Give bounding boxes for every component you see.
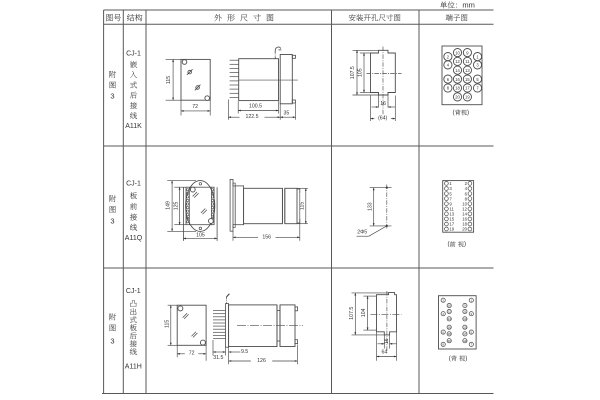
svg-text:): )	[465, 355, 467, 362]
svg-text:9.5: 9.5	[241, 349, 248, 355]
svg-text:): )	[467, 109, 469, 116]
svg-text:19: 19	[465, 95, 470, 100]
svg-text:19: 19	[463, 339, 467, 343]
svg-text:CJ-1: CJ-1	[126, 181, 141, 188]
svg-text:115: 115	[165, 320, 171, 328]
svg-text:100.5: 100.5	[249, 104, 262, 110]
svg-text:A11H: A11H	[125, 363, 142, 370]
svg-text:107.5: 107.5	[350, 66, 356, 79]
svg-text:72: 72	[189, 351, 195, 357]
svg-text:14: 14	[448, 317, 452, 321]
svg-text:13: 13	[463, 317, 467, 321]
svg-text:20: 20	[455, 95, 460, 100]
svg-text:20: 20	[448, 339, 452, 343]
svg-text:10: 10	[448, 304, 452, 308]
svg-text:12: 12	[455, 59, 460, 64]
svg-text:156: 156	[262, 234, 271, 240]
svg-text:16: 16	[448, 325, 452, 329]
svg-text:12: 12	[448, 310, 452, 314]
svg-text:18: 18	[448, 332, 452, 336]
svg-text:10: 10	[455, 50, 460, 55]
svg-text:3: 3	[110, 337, 114, 346]
svg-text:19: 19	[449, 227, 454, 232]
svg-text:31.5: 31.5	[213, 355, 223, 361]
svg-text:115: 115	[166, 76, 172, 84]
svg-text:72: 72	[192, 104, 198, 110]
svg-text:15: 15	[465, 77, 470, 82]
svg-text:35: 35	[284, 110, 290, 116]
svg-text:16: 16	[380, 101, 386, 107]
svg-text:16: 16	[384, 338, 390, 344]
svg-text:3: 3	[110, 92, 114, 101]
svg-text:105: 105	[358, 68, 364, 77]
svg-text:3: 3	[110, 217, 114, 226]
svg-text:11: 11	[465, 59, 470, 64]
svg-text:A11K: A11K	[125, 123, 142, 130]
svg-text:133: 133	[367, 202, 373, 211]
svg-text:126: 126	[257, 358, 266, 364]
svg-text:17: 17	[463, 332, 467, 336]
svg-text:115: 115	[300, 202, 306, 210]
svg-text:mm: mm	[462, 0, 475, 9]
svg-text:149: 149	[166, 201, 172, 210]
svg-text:(64): (64)	[378, 116, 387, 122]
svg-text:11: 11	[463, 310, 466, 314]
svg-text:13: 13	[465, 68, 470, 73]
svg-text:CJ-1: CJ-1	[126, 51, 141, 58]
svg-text:CJ-1: CJ-1	[126, 288, 141, 295]
svg-text:122.5: 122.5	[246, 114, 259, 120]
svg-text:15: 15	[463, 325, 467, 329]
svg-text:125: 125	[173, 201, 179, 210]
svg-text:20: 20	[462, 227, 467, 232]
svg-text:16: 16	[455, 77, 460, 82]
svg-text:): )	[464, 241, 466, 248]
svg-text:A11Q: A11Q	[125, 235, 143, 242]
svg-text:64: 64	[382, 350, 388, 356]
svg-text:107.5: 107.5	[349, 307, 355, 320]
svg-text:14: 14	[455, 68, 460, 73]
svg-text:17: 17	[465, 86, 470, 91]
svg-text:18: 18	[455, 86, 460, 91]
svg-text:104: 104	[361, 308, 367, 317]
svg-text:105: 105	[196, 232, 205, 238]
svg-text:2Φ5: 2Φ5	[357, 230, 367, 236]
